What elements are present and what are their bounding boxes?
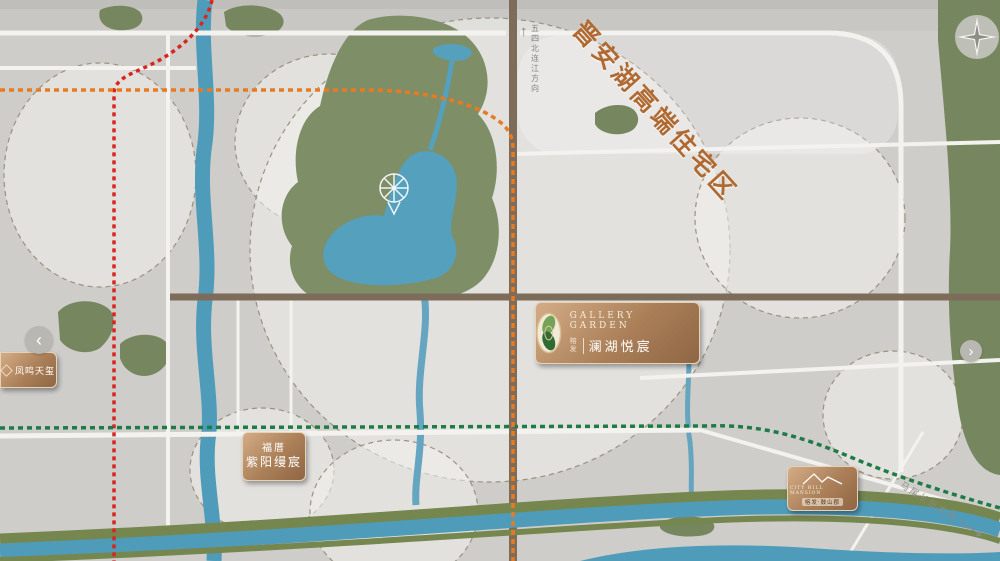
carousel-right-button[interactable]: › — [960, 340, 982, 362]
project-gallery-garden-box: GALLERY GARDEN 榕发 澜湖悦宸 — [535, 302, 700, 364]
mountain-icon — [801, 472, 845, 485]
cityhill-name-zh: 榕发·鼓山郡 — [802, 498, 843, 506]
project-name-zh: 澜湖悦宸 — [589, 336, 653, 355]
diamond-icon — [0, 364, 13, 377]
location-map: 晋安湖高端住宅区 GALLERY GARDEN 榕发 澜湖悦宸 凤鸣天玺 福厝 … — [0, 0, 1000, 561]
phoenix-name: 凤鸣天玺 — [15, 364, 55, 377]
cityhill-name-en: CITY HILL MANSION — [790, 486, 855, 496]
project-name-en: GALLERY GARDEN — [570, 311, 699, 331]
divider — [583, 338, 584, 354]
project-emblem-icon — [536, 312, 562, 354]
project-fucuo-box: 福厝 紫阳缦宸 — [242, 432, 306, 481]
carousel-left-button[interactable]: ‹ — [25, 326, 53, 354]
chevron-left-icon: ‹ — [36, 331, 42, 349]
project-cityhill-box: CITY HILL MANSION 榕发·鼓山郡 — [787, 466, 858, 511]
chevron-right-icon: › — [969, 344, 974, 359]
project-brand: 榕发 — [570, 338, 578, 353]
compass-icon — [952, 12, 1000, 62]
project-phoenix-box: 凤鸣天玺 — [0, 352, 57, 388]
up-arrow-icon: ↑ — [520, 24, 528, 94]
fucuo-brand: 福厝 — [262, 442, 286, 455]
direction-north: ↑ 五四北连江方向 — [520, 24, 541, 94]
fucuo-name: 紫阳缦宸 — [246, 455, 302, 471]
